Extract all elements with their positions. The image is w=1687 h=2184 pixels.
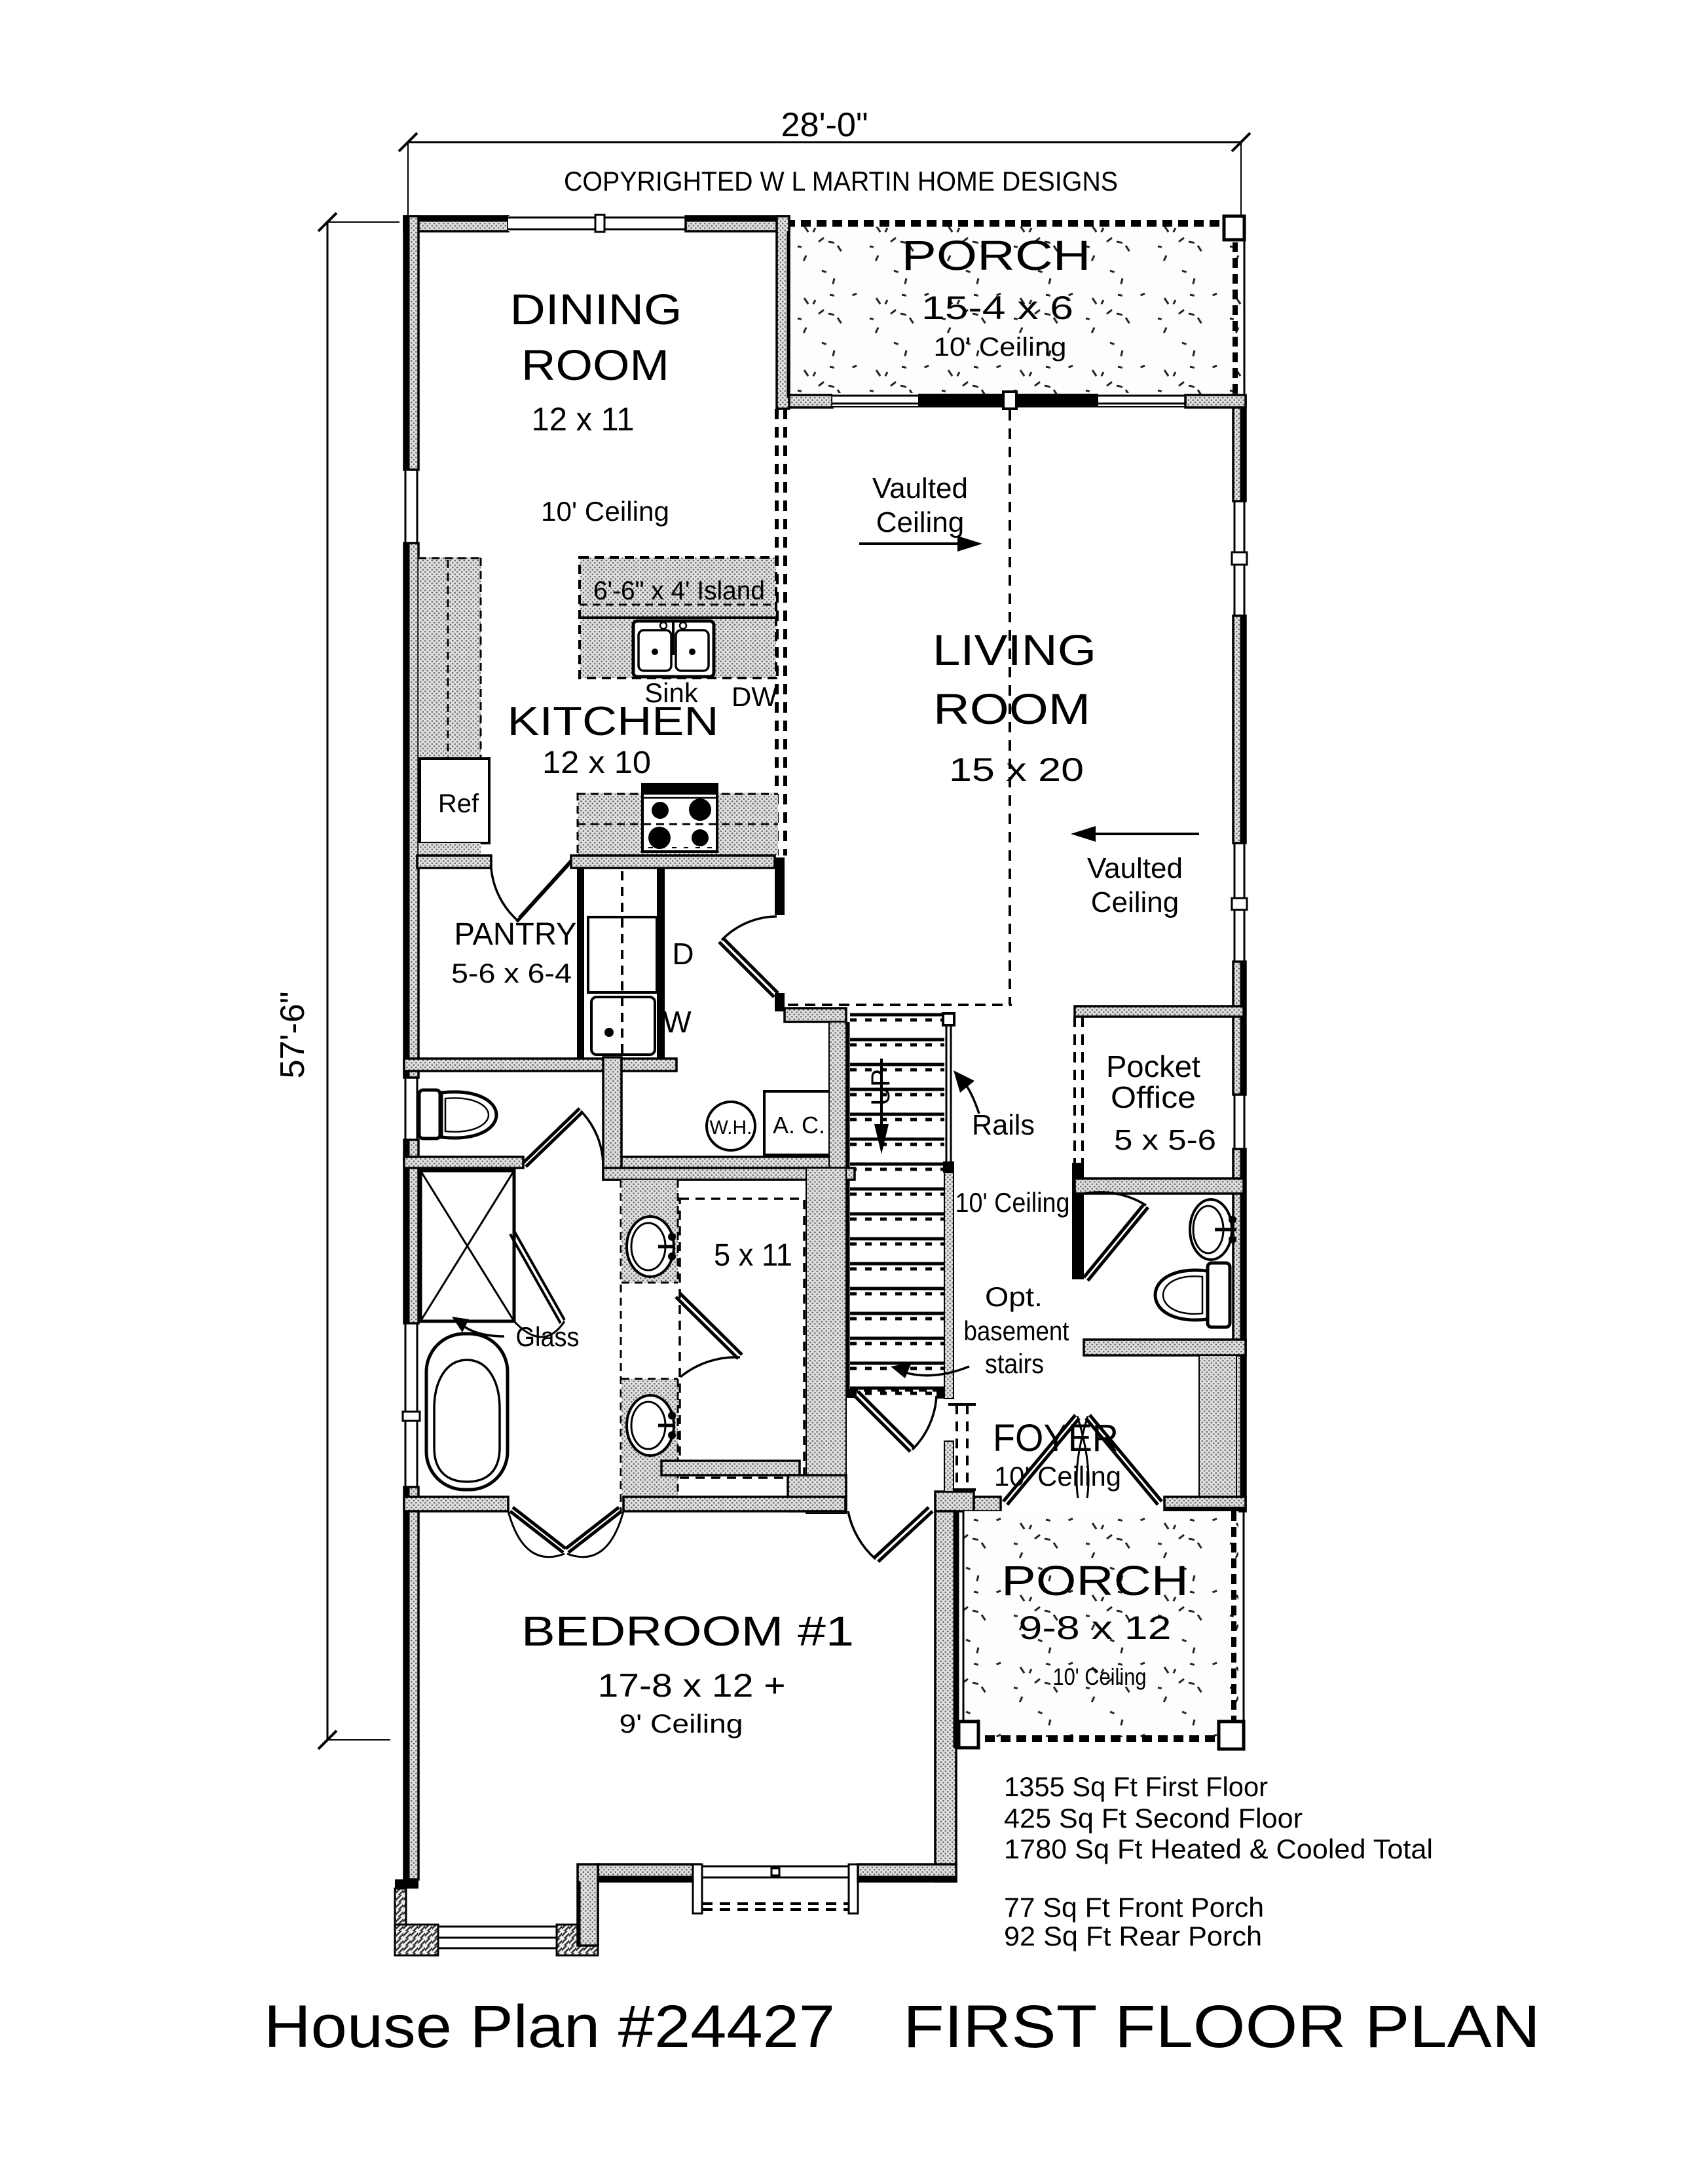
svg-text:5 x 5-6: 5 x 5-6 [1114,1124,1216,1156]
svg-text:PANTRY: PANTRY [454,917,577,952]
svg-text:92 Sq Ft Rear Porch: 92 Sq Ft Rear Porch [1004,1921,1262,1951]
svg-text:KITCHEN: KITCHEN [508,699,719,744]
svg-text:17-8 x 12 +: 17-8 x 12 + [598,1667,786,1704]
svg-text:D: D [672,937,694,971]
svg-text:12 x 10: 12 x 10 [542,745,651,780]
svg-text:12 x 11: 12 x 11 [532,401,635,438]
svg-text:LIVING: LIVING [933,626,1096,674]
svg-text:10' Ceiling: 10' Ceiling [1053,1663,1147,1690]
svg-text:1780 Sq Ft Heated & Cooled Tot: 1780 Sq Ft Heated & Cooled Total [1004,1834,1433,1864]
svg-text:15-4 x 6: 15-4 x 6 [921,290,1073,326]
svg-text:10' Ceiling: 10' Ceiling [994,1461,1121,1492]
svg-text:Rails: Rails [972,1109,1035,1141]
svg-text:ROOM: ROOM [521,341,669,389]
svg-text:DINING: DINING [510,285,682,333]
svg-text:10' Ceiling: 10' Ceiling [541,496,669,527]
svg-text:A. C.: A. C. [773,1112,825,1139]
svg-text:W.H.: W.H. [710,1117,752,1139]
svg-text:COPYRIGHTED W L MARTIN HOME DE: COPYRIGHTED W L MARTIN HOME DESIGNS [564,166,1118,197]
svg-text:9' Ceiling: 9' Ceiling [620,1710,743,1739]
svg-text:9-8 x 12: 9-8 x 12 [1019,1610,1172,1646]
svg-text:Ceiling: Ceiling [1091,886,1179,918]
svg-text:DW: DW [732,681,777,712]
svg-text:Glass: Glass [516,1321,580,1352]
svg-text:1355 Sq Ft First Floor: 1355 Sq Ft First Floor [1004,1771,1268,1802]
svg-text:5 x 11: 5 x 11 [714,1238,792,1273]
svg-text:PORCH: PORCH [1001,1557,1189,1604]
svg-text:28'-0": 28'-0" [781,106,868,144]
svg-text:Office: Office [1111,1080,1196,1114]
svg-text:Vaulted: Vaulted [872,472,968,504]
svg-text:BEDROOM #1: BEDROOM #1 [521,1608,854,1655]
svg-text:57'-6": 57'-6" [274,992,312,1079]
svg-text:77 Sq Ft Front Porch: 77 Sq Ft Front Porch [1004,1892,1264,1923]
svg-text:Vaulted: Vaulted [1087,852,1183,884]
svg-text:10' Ceiling: 10' Ceiling [955,1187,1070,1218]
svg-text:ROOM: ROOM [933,685,1090,733]
svg-text:Ceiling: Ceiling [876,506,965,538]
svg-text:Ref: Ref [438,789,479,818]
svg-text:House Plan #24427: House Plan #24427 [264,1993,835,2060]
svg-text:15 x 20: 15 x 20 [949,751,1084,788]
svg-text:FIRST FLOOR PLAN: FIRST FLOOR PLAN [903,1993,1540,2060]
svg-text:stairs: stairs [985,1348,1044,1379]
svg-text:Opt.: Opt. [985,1281,1043,1312]
svg-text:W: W [663,1005,692,1039]
svg-text:basement: basement [964,1315,1069,1346]
svg-text:PORCH: PORCH [902,232,1091,279]
svg-text:10' Ceiling: 10' Ceiling [934,333,1067,362]
svg-text:6'-6" x 4' Island: 6'-6" x 4' Island [593,576,765,605]
svg-text:5-6 x 6-4: 5-6 x 6-4 [451,958,572,988]
svg-text:Pocket: Pocket [1106,1049,1200,1083]
svg-text:425 Sq Ft Second Floor: 425 Sq Ft Second Floor [1004,1803,1303,1834]
